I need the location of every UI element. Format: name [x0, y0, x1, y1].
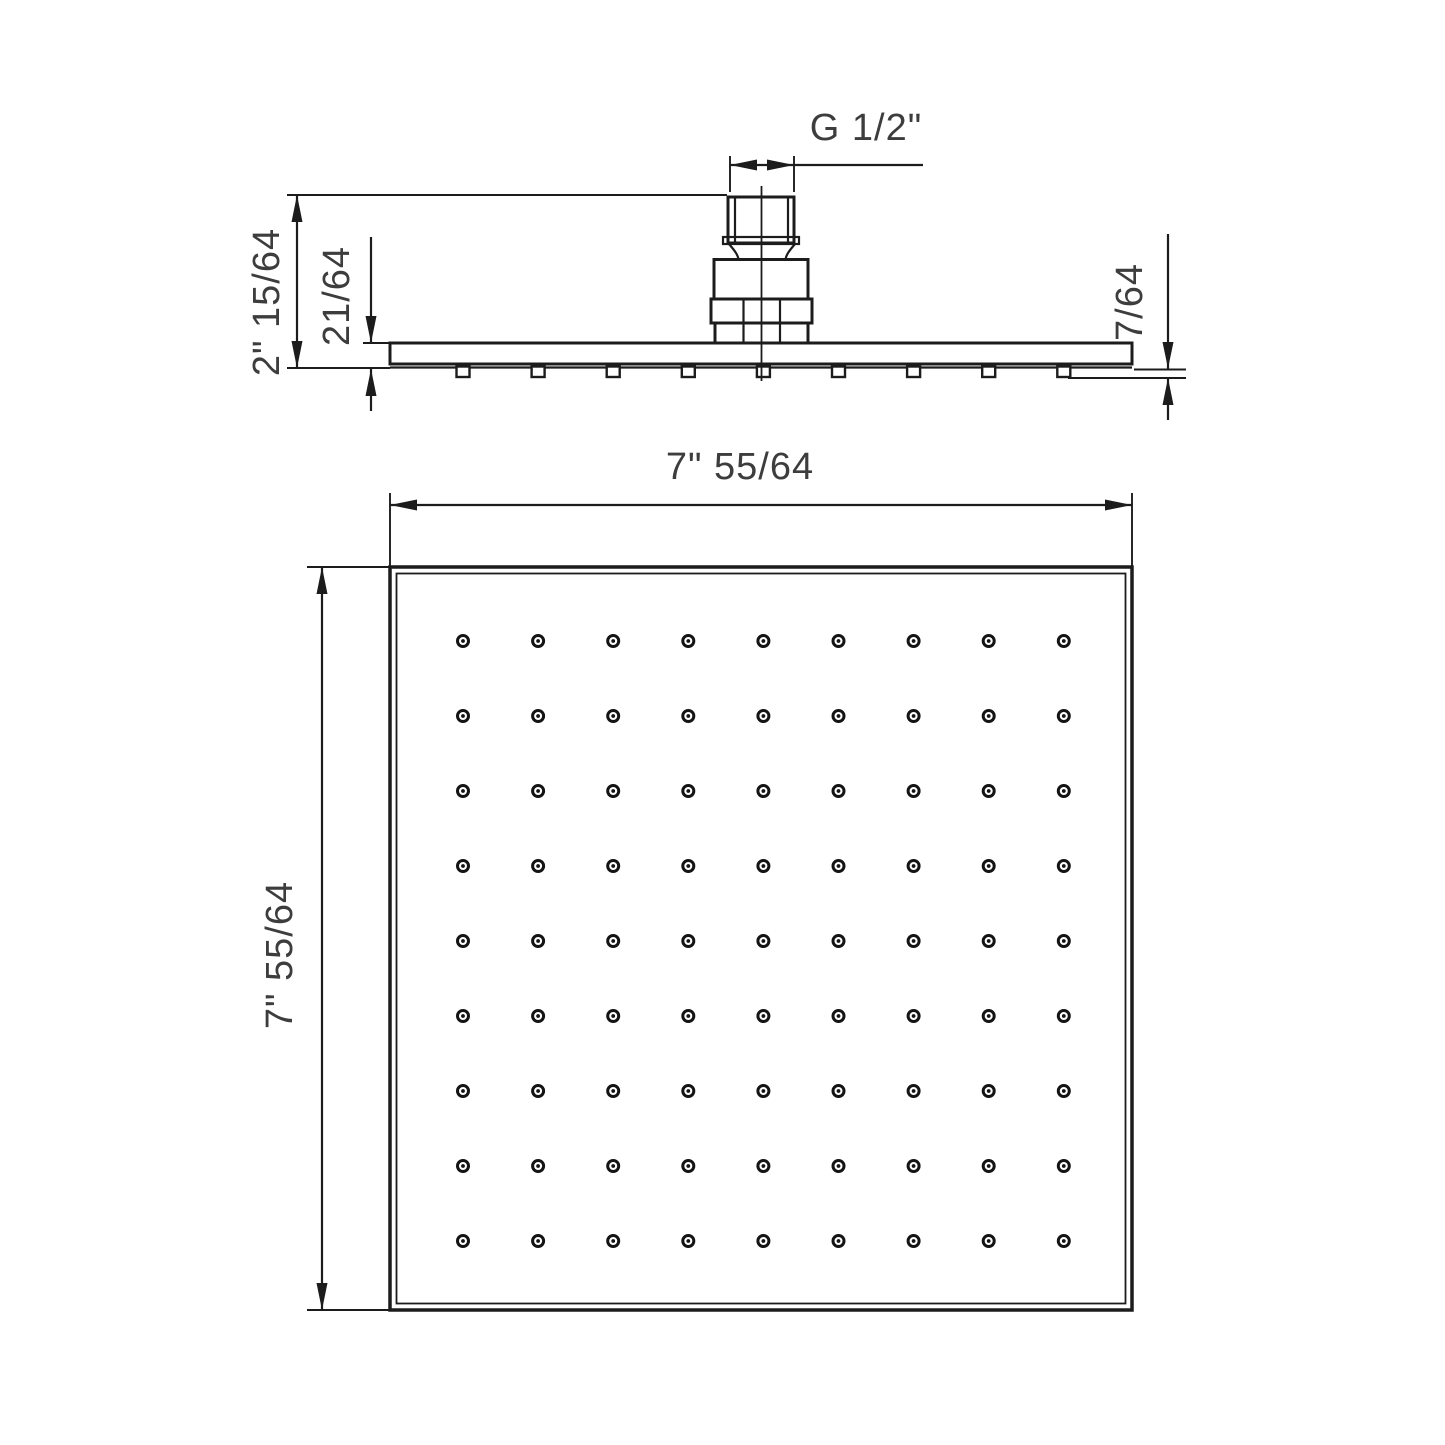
nozzle-center-dot [837, 1089, 841, 1093]
nozzle-center-dot [987, 1014, 991, 1018]
nozzle-center-dot [987, 1089, 991, 1093]
nozzle-center-dot [1062, 1164, 1066, 1168]
nozzle-center-dot [1062, 714, 1066, 718]
nozzle-center-dot [536, 639, 540, 643]
nozzle-center-dot [461, 939, 465, 943]
overall-height-label: 2" 15/64 [246, 228, 288, 376]
arrowhead [292, 195, 303, 222]
nozzle-center-dot [536, 1239, 540, 1243]
thread-size-label: G 1/2" [810, 107, 922, 149]
nozzle-center-dot [611, 714, 615, 718]
nozzle-center-dot [762, 639, 766, 643]
arrowhead [317, 1283, 328, 1310]
side-nozzle [757, 367, 770, 378]
nozzle-center-dot [987, 789, 991, 793]
nozzle-center-dot [686, 1089, 690, 1093]
nozzle-center-dot [837, 639, 841, 643]
nozzle-center-dot [837, 1164, 841, 1168]
nozzle-center-dot [461, 864, 465, 868]
nozzle-center-dot [987, 714, 991, 718]
nozzle-center-dot [912, 714, 916, 718]
nozzle-center-dot [536, 789, 540, 793]
side-nozzle [907, 367, 920, 378]
nozzle-center-dot [762, 1164, 766, 1168]
dimension-plate-height: 7" 55/64 [259, 567, 389, 1310]
side-nozzle [1057, 367, 1070, 378]
nozzle-center-dot [987, 864, 991, 868]
dimension-plate-width: 7" 55/64 [390, 446, 1132, 566]
nozzle-center-dot [837, 939, 841, 943]
nozzle-center-dot [611, 639, 615, 643]
nozzle-center-dot [536, 1089, 540, 1093]
nozzle-center-dot [611, 939, 615, 943]
side-nozzle [982, 367, 995, 378]
nozzle-center-dot [611, 1089, 615, 1093]
nozzle-center-dot [686, 714, 690, 718]
arrowhead [730, 160, 757, 171]
nozzle-center-dot [987, 939, 991, 943]
nozzle-center-dot [912, 1014, 916, 1018]
side-view: G 1/2" 2" 15/64 21/64 [246, 107, 1186, 420]
nozzle-center-dot [837, 864, 841, 868]
nozzle-center-dot [762, 1239, 766, 1243]
arrowhead [1163, 378, 1174, 405]
plate-inner-edge [397, 574, 1126, 1304]
nozzle-center-dot [837, 1239, 841, 1243]
arrowhead [366, 369, 377, 396]
nozzle-center-dot [686, 864, 690, 868]
nozzle-center-dot [1062, 939, 1066, 943]
nozzle-center-dot [762, 864, 766, 868]
nozzle-center-dot [461, 639, 465, 643]
nozzle-center-dot [837, 789, 841, 793]
nozzle-center-dot [762, 1014, 766, 1018]
arrowhead [1105, 500, 1132, 511]
plate-outline [390, 567, 1132, 1310]
arrowhead [390, 500, 417, 511]
nozzle-center-dot [536, 1164, 540, 1168]
side-nozzle [607, 367, 620, 378]
nozzle-center-dot [912, 1164, 916, 1168]
arrowhead [366, 316, 377, 343]
plate-width-label: 7" 55/64 [666, 446, 814, 488]
nozzle-center-dot [1062, 789, 1066, 793]
arrowhead [317, 567, 328, 594]
nozzle-center-dot [461, 1014, 465, 1018]
nozzle-center-dot [1062, 639, 1066, 643]
side-nozzle [832, 367, 845, 378]
nozzle-center-dot [536, 864, 540, 868]
dimension-plate-thickness: 21/64 [316, 237, 390, 411]
nozzle-center-dot [912, 1089, 916, 1093]
nozzle-center-dot [611, 1164, 615, 1168]
nozzle-center-dot [762, 789, 766, 793]
nozzle-center-dot [686, 789, 690, 793]
nozzle-center-dot [536, 714, 540, 718]
dimension-nozzle-protrusion: 7/64 [1068, 234, 1186, 420]
nozzle-center-dot [837, 714, 841, 718]
nozzle-center-dot [987, 639, 991, 643]
dimension-thread-size: G 1/2" [730, 107, 923, 192]
nozzle-center-dot [762, 1089, 766, 1093]
nozzle-center-dot [987, 1239, 991, 1243]
nozzle-center-dot [912, 1239, 916, 1243]
side-nozzle [682, 367, 695, 378]
nozzle-center-dot [686, 639, 690, 643]
nozzle-center-dot [611, 789, 615, 793]
nozzle-center-dot [837, 1014, 841, 1018]
nozzle-center-dot [987, 1164, 991, 1168]
nozzle-center-dot [536, 1014, 540, 1018]
nozzle-center-dot [1062, 1089, 1066, 1093]
nozzle-center-dot [912, 864, 916, 868]
bottom-view: 7" 55/64 7" 55/64 [259, 446, 1132, 1310]
nozzle-center-dot [912, 789, 916, 793]
nozzle-center-dot [461, 789, 465, 793]
side-nozzle [532, 367, 545, 378]
nozzle-center-dot [762, 939, 766, 943]
nozzle-grid [458, 636, 1070, 1247]
nozzle-center-dot [611, 864, 615, 868]
nozzle-center-dot [611, 1014, 615, 1018]
technical-drawing: G 1/2" 2" 15/64 21/64 [0, 0, 1445, 1445]
nozzle-center-dot [536, 939, 540, 943]
nozzle-center-dot [912, 939, 916, 943]
arrowhead [1163, 342, 1174, 369]
plate-height-label: 7" 55/64 [259, 881, 301, 1029]
arrowhead [767, 160, 794, 171]
nozzle-center-dot [461, 1239, 465, 1243]
nozzle-center-dot [1062, 1014, 1066, 1018]
drawing-page: G 1/2" 2" 15/64 21/64 [0, 0, 1445, 1445]
nozzle-center-dot [686, 1239, 690, 1243]
nozzle-center-dot [1062, 1239, 1066, 1243]
nozzle-center-dot [611, 1239, 615, 1243]
arrowhead [292, 341, 303, 368]
side-nozzle [457, 367, 470, 378]
plate-thickness-label: 21/64 [316, 246, 358, 346]
nozzle-center-dot [1062, 864, 1066, 868]
nozzle-center-dot [762, 714, 766, 718]
nozzle-center-dot [686, 1164, 690, 1168]
nozzle-center-dot [686, 1014, 690, 1018]
nozzle-center-dot [461, 1164, 465, 1168]
nozzle-center-dot [461, 1089, 465, 1093]
nozzle-center-dot [461, 714, 465, 718]
nozzle-center-dot [686, 939, 690, 943]
nozzle-center-dot [912, 639, 916, 643]
nozzle-protrusion-label: 7/64 [1109, 263, 1151, 341]
